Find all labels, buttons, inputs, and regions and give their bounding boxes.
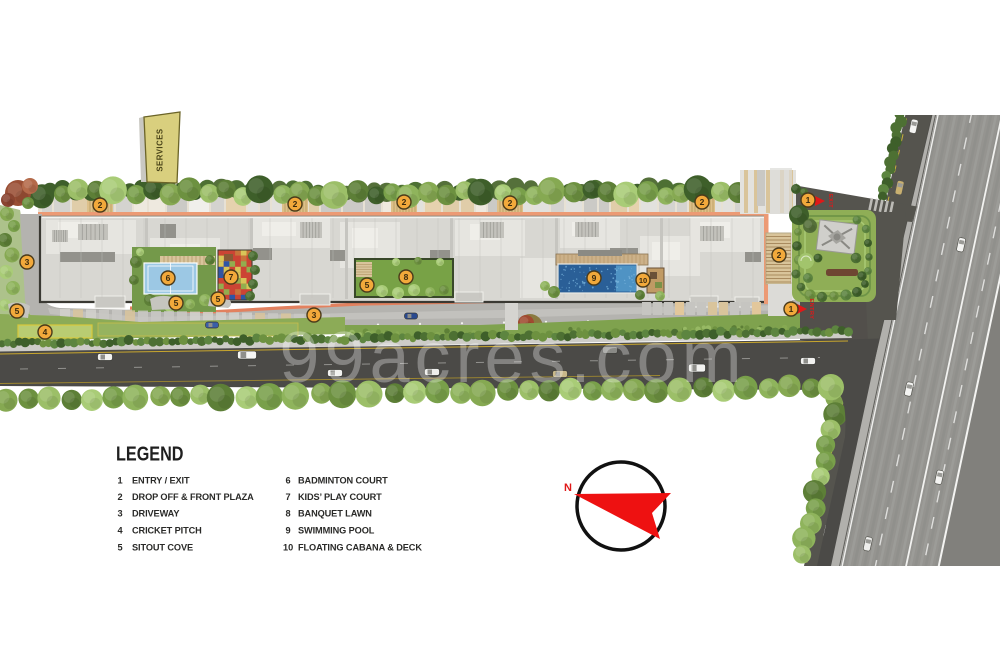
svg-text:EXIT: EXIT xyxy=(827,194,833,208)
svg-text:8: 8 xyxy=(286,509,291,519)
svg-text:2: 2 xyxy=(293,199,298,209)
svg-text:5: 5 xyxy=(365,280,370,290)
svg-text:1: 1 xyxy=(806,195,811,205)
svg-text:10: 10 xyxy=(639,276,647,285)
svg-text:BANQUET LAWN: BANQUET LAWN xyxy=(298,509,372,519)
svg-text:5: 5 xyxy=(174,298,179,308)
svg-text:ENTRY / EXIT: ENTRY / EXIT xyxy=(132,476,190,486)
svg-text:99acres.com: 99acres.com xyxy=(279,318,746,398)
svg-text:5: 5 xyxy=(216,294,221,304)
svg-text:SITOUT COVE: SITOUT COVE xyxy=(132,543,193,553)
svg-text:7: 7 xyxy=(286,492,291,502)
svg-text:7: 7 xyxy=(229,272,234,282)
svg-text:DRIVEWAY: DRIVEWAY xyxy=(132,509,179,519)
svg-text:5: 5 xyxy=(118,543,123,553)
svg-text:2: 2 xyxy=(402,197,407,207)
svg-text:FLOATING CABANA & DECK: FLOATING CABANA & DECK xyxy=(298,543,422,553)
svg-text:2: 2 xyxy=(777,250,782,260)
svg-text:10: 10 xyxy=(283,543,293,553)
svg-text:ENTRY: ENTRY xyxy=(808,299,814,320)
svg-text:SWIMMING POOL: SWIMMING POOL xyxy=(298,526,375,536)
svg-text:6: 6 xyxy=(166,273,171,283)
svg-text:6: 6 xyxy=(286,476,291,486)
svg-text:N: N xyxy=(564,482,572,494)
svg-text:3: 3 xyxy=(118,509,123,519)
svg-text:BADMINTON COURT: BADMINTON COURT xyxy=(298,476,388,486)
svg-text:LEGEND: LEGEND xyxy=(116,443,184,466)
svg-text:2: 2 xyxy=(98,200,103,210)
svg-text:4: 4 xyxy=(43,327,48,337)
svg-text:2: 2 xyxy=(508,198,513,208)
svg-text:2: 2 xyxy=(700,197,705,207)
svg-text:DROP OFF & FRONT PLAZA: DROP OFF & FRONT PLAZA xyxy=(132,492,254,502)
svg-text:1: 1 xyxy=(118,476,123,486)
svg-text:CRICKET PITCH: CRICKET PITCH xyxy=(132,526,202,536)
svg-text:4: 4 xyxy=(118,526,124,536)
svg-text:3: 3 xyxy=(25,257,30,267)
svg-text:KIDS’ PLAY COURT: KIDS’ PLAY COURT xyxy=(298,492,382,502)
svg-text:9: 9 xyxy=(286,526,291,536)
svg-text:9: 9 xyxy=(592,273,597,283)
svg-text:SERVICES: SERVICES xyxy=(156,128,165,171)
svg-text:1: 1 xyxy=(789,304,794,314)
svg-text:8: 8 xyxy=(404,272,409,282)
svg-text:2: 2 xyxy=(118,492,123,502)
svg-text:5: 5 xyxy=(15,306,20,316)
